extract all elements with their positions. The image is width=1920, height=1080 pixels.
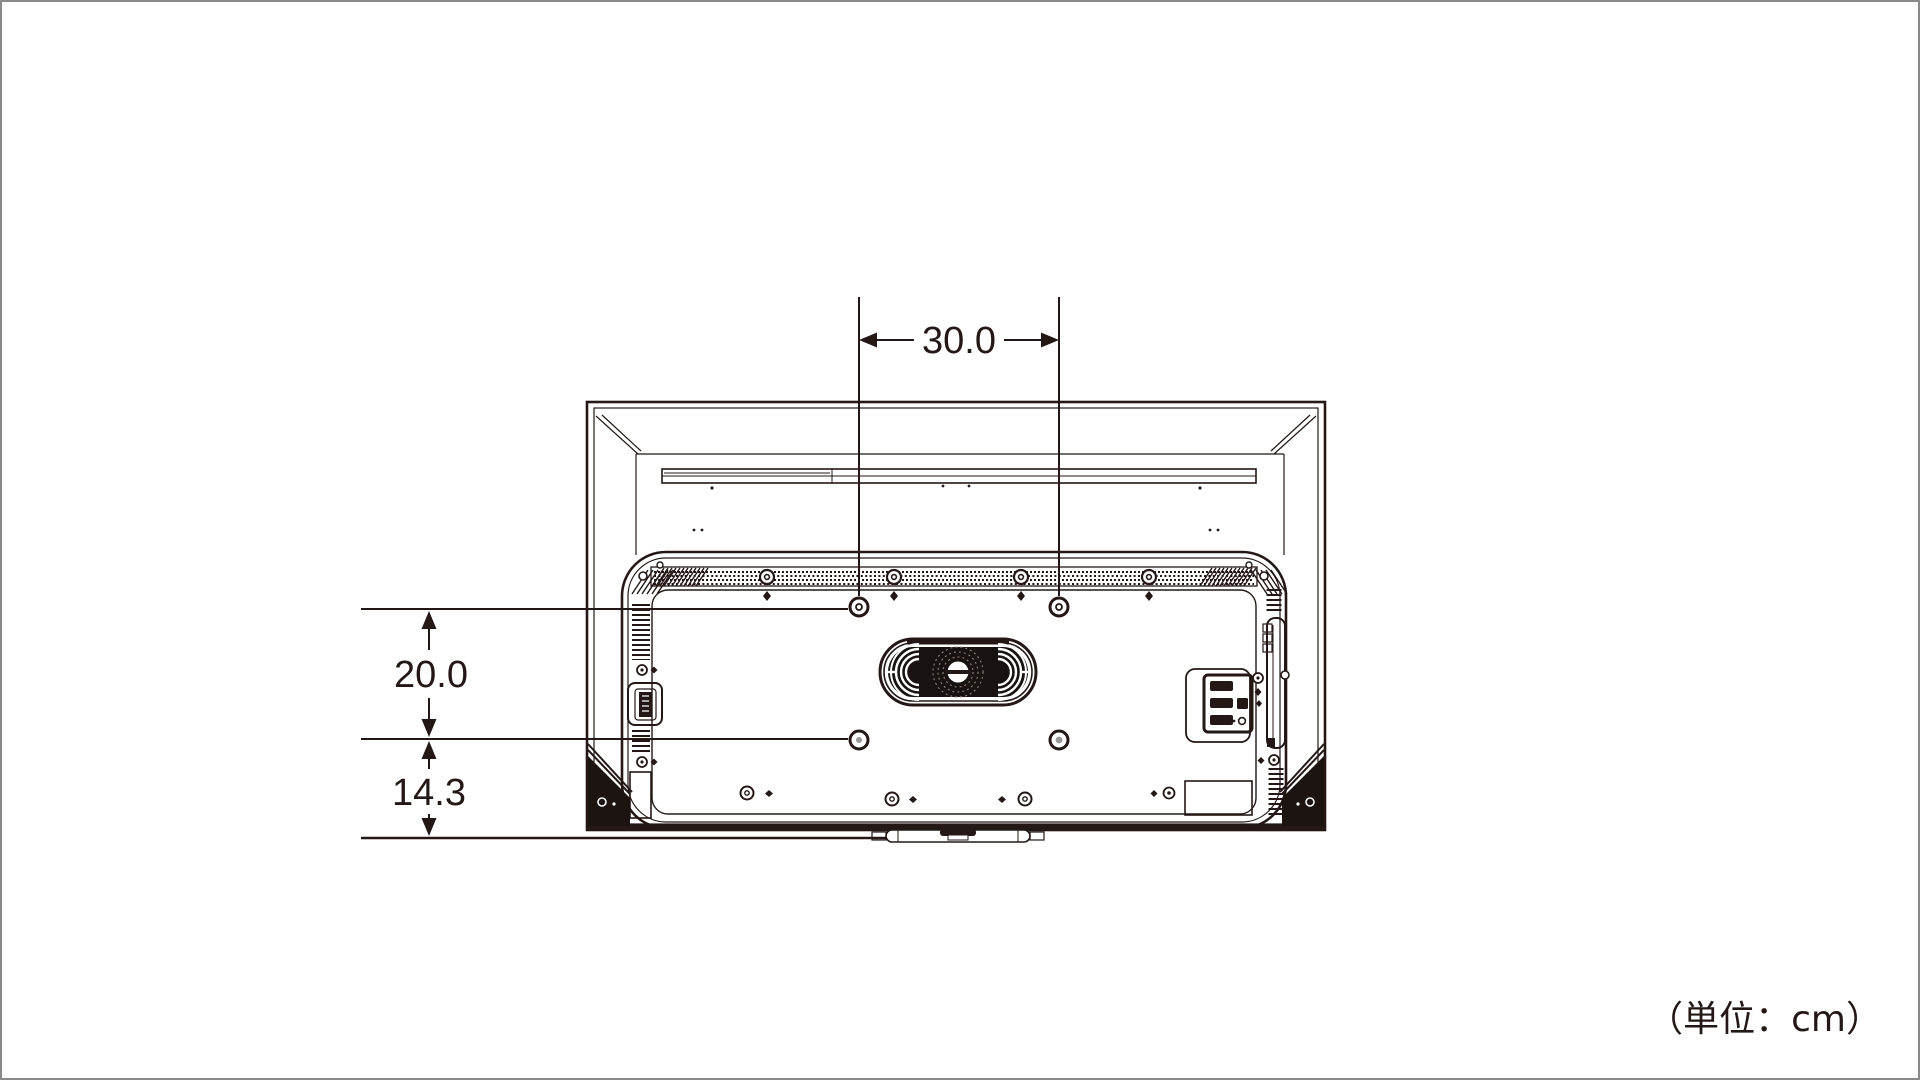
side-connector-bay [1253,618,1289,765]
vesa-hole-bottom-right [1050,731,1068,749]
cabinet-dots [693,485,1220,532]
tv-rear-dimension-diagram: 30.0 20.0 14.3 （単位：cm） [2,2,1920,1080]
bottom-screws [741,787,1032,806]
keyhole-marks [763,591,1153,601]
dimension-label-vesa-vertical: 20.0 [394,654,468,696]
tv-outer-cabinet [587,402,1325,830]
page: 30.0 20.0 14.3 （単位：cm） [0,0,1920,1080]
label-screw [1151,788,1175,799]
corner-shadow-bottom-left [588,744,632,826]
bottom-left-cover [630,772,651,818]
rear-connector-panel [1186,669,1252,742]
dimension-label-bottom-offset: 14.3 [392,772,466,814]
bottom-stand-rail [872,829,1044,842]
dimension-label-vesa-horizontal: 30.0 [922,320,996,362]
unit-note: （単位：cm） [1647,999,1882,1040]
vesa-hole-bottom-left [850,731,868,749]
top-handle-slot [662,469,1256,483]
vesa-hole-top-right [1050,598,1068,616]
vesa-hole-top-left [850,598,868,616]
stand-mount-oval [880,639,1036,705]
label-plate [1185,781,1252,815]
raised-back-panel [588,552,1324,842]
speaker-grille-band [651,567,1257,601]
ac-inlet [628,683,662,725]
